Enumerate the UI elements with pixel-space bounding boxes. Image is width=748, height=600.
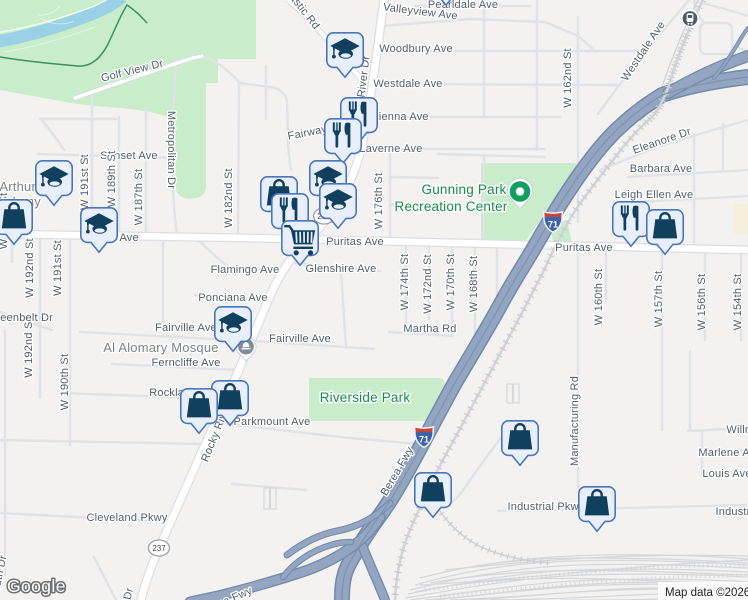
svg-text:Cleveland Pkwy: Cleveland Pkwy <box>86 512 167 524</box>
svg-text:237: 237 <box>152 544 166 553</box>
svg-text:Glenshire Ave: Glenshire Ave <box>306 263 377 275</box>
svg-text:Westdale Ave: Westdale Ave <box>373 78 442 90</box>
svg-text:W 172nd St: W 172nd St <box>422 254 434 313</box>
svg-text:Google: Google <box>7 576 66 596</box>
svg-text:Louis Ave: Louis Ave <box>702 468 748 480</box>
svg-text:Flamingo Ave: Flamingo Ave <box>211 264 280 276</box>
svg-text:Willna Ave: Willna Ave <box>726 424 748 436</box>
svg-text:Woodbury Ave: Woodbury Ave <box>379 43 453 55</box>
svg-text:Manufacturing Rd: Manufacturing Rd <box>569 376 581 466</box>
svg-text:Industrial Pkwy: Industrial Pkwy <box>508 501 585 513</box>
svg-text:W 170th St: W 170th St <box>445 254 457 310</box>
svg-text:Ferncliffe Ave: Ferncliffe Ave <box>151 357 220 369</box>
svg-text:W 154th St: W 154th St <box>732 274 744 330</box>
svg-text:Al Alomary Mosque: Al Alomary Mosque <box>103 340 218 355</box>
svg-text:Industrial Pkwy: Industrial Pkwy <box>716 506 748 518</box>
svg-text:Fairville Ave: Fairville Ave <box>155 322 217 334</box>
svg-text:Map data ©2026: Map data ©2026 <box>665 587 748 599</box>
svg-text:Greenbelt Dr: Greenbelt Dr <box>0 312 53 324</box>
svg-text:Puritas Ave: Puritas Ave <box>555 242 613 254</box>
svg-text:Sienna Ave: Sienna Ave <box>371 111 428 123</box>
svg-text:Martha Rd: Martha Rd <box>403 323 456 335</box>
svg-text:MacArthur: MacArthur <box>0 179 36 194</box>
svg-text:Marlene Ave: Marlene Ave <box>698 447 748 459</box>
svg-text:71: 71 <box>419 435 429 445</box>
svg-text:71: 71 <box>548 220 558 230</box>
svg-text:W 157th St: W 157th St <box>653 271 665 327</box>
svg-text:Recreation Center: Recreation Center <box>395 199 508 214</box>
svg-text:Riverside Park: Riverside Park <box>320 390 411 405</box>
svg-text:W 192nd St: W 192nd St <box>23 318 35 377</box>
svg-text:W 187th St: W 187th St <box>133 169 145 225</box>
svg-text:Gunning Park: Gunning Park <box>422 182 507 197</box>
svg-text:Barbara Ave: Barbara Ave <box>630 163 693 175</box>
svg-text:W 189th St: W 189th St <box>106 151 118 207</box>
svg-text:Fairville Ave: Fairville Ave <box>269 333 331 345</box>
svg-text:Parkmount Ave: Parkmount Ave <box>234 416 311 428</box>
svg-text:Laverne Ave: Laverne Ave <box>359 143 422 155</box>
svg-text:W 191st St: W 191st St <box>79 154 91 210</box>
svg-text:W 192nd St: W 192nd St <box>24 238 36 297</box>
svg-text:W 156th St: W 156th St <box>696 274 708 330</box>
svg-text:W 168th St: W 168th St <box>468 256 480 312</box>
svg-text:Metropolitan Dr: Metropolitan Dr <box>165 111 177 189</box>
svg-text:W 176th St: W 176th St <box>373 173 385 229</box>
svg-text:W 182nd St: W 182nd St <box>223 168 235 227</box>
svg-text:W 160th St: W 160th St <box>593 269 605 325</box>
svg-text:Ponciana Ave: Ponciana Ave <box>198 292 267 304</box>
svg-text:W 191st St: W 191st St <box>52 240 64 296</box>
svg-text:W 190th St: W 190th St <box>59 354 71 410</box>
svg-text:W 162nd St: W 162nd St <box>562 48 574 107</box>
svg-text:Puritas Ave: Puritas Ave <box>326 236 384 248</box>
svg-text:W 174th St: W 174th St <box>399 254 411 310</box>
svg-text:Leigh Ellen Ave: Leigh Ellen Ave <box>615 189 694 201</box>
